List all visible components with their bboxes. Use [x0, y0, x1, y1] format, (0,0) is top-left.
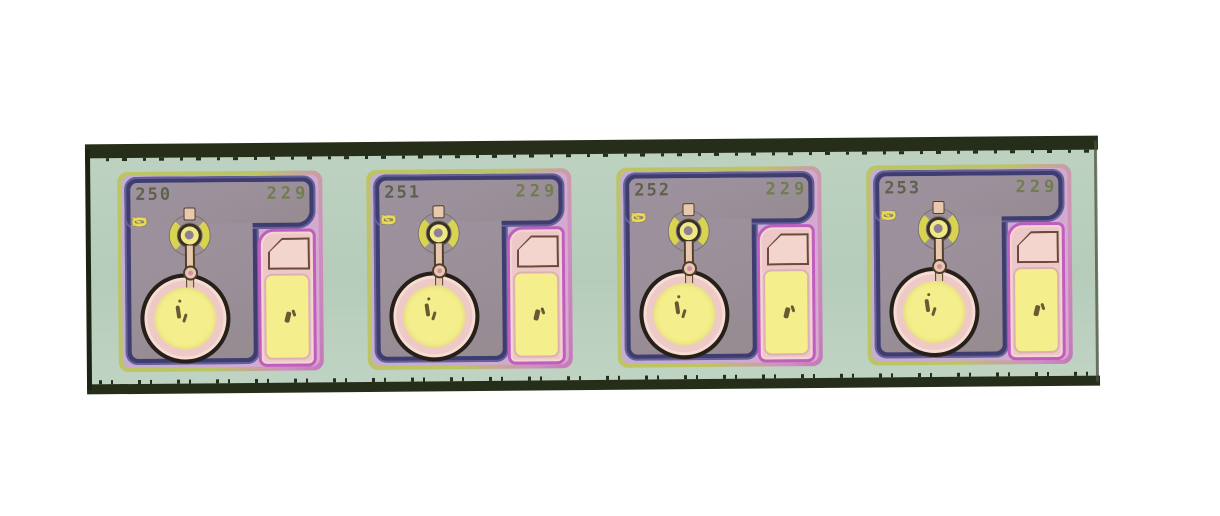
probe-mark: [674, 301, 680, 314]
trace-node-hole: [437, 268, 442, 273]
probe-mark: [431, 311, 437, 320]
die-code-number: 229: [766, 179, 809, 199]
probe-mark: [533, 309, 540, 321]
alignment-ring: [178, 223, 202, 247]
alignment-ring-hole: [434, 228, 443, 237]
die-code-number: 229: [267, 183, 310, 203]
probe-mark: [931, 307, 937, 316]
trace-node: [682, 261, 697, 276]
trace-node: [183, 265, 198, 280]
chip-die-252: 252 229 2 2 0: [616, 166, 823, 368]
probe-mark: [284, 311, 291, 323]
circular-bond-pad: [903, 281, 966, 344]
trace-node: [932, 259, 947, 274]
rect-bond-pad: [763, 269, 810, 355]
trapezoid-pad: [769, 235, 807, 263]
strip-bottom-edge: [87, 376, 1100, 395]
trapezoid-pad: [1019, 233, 1057, 261]
probe-mark: [178, 300, 181, 303]
alignment-ring: [927, 217, 951, 241]
die-serial-number: 250: [135, 185, 172, 205]
rect-bond-pad: [513, 271, 560, 357]
strip-right-edge: [1094, 141, 1099, 382]
alignment-ring-hole: [934, 224, 943, 233]
trapezoid-pad: [519, 237, 557, 265]
rect-pad-area: [757, 224, 816, 363]
circular-bond-pad: [403, 285, 466, 348]
die-code-number: 229: [1016, 177, 1059, 197]
probe-mark: [681, 309, 687, 318]
alignment-tab: [183, 207, 195, 220]
strip-left-edge: [85, 149, 92, 390]
die-serial-number: 251: [384, 182, 421, 202]
trace-node-hole: [687, 266, 692, 271]
probe-mark: [677, 295, 680, 298]
alignment-ring-hole: [684, 226, 693, 235]
alignment-tab: [432, 205, 444, 218]
trace-node-hole: [188, 270, 193, 275]
rect-bond-pad: [264, 273, 311, 359]
trace-node: [432, 263, 447, 278]
die-serial-number: 253: [884, 178, 921, 198]
chip-die-250: 250 229 2 2 0: [117, 170, 324, 372]
alignment-ring-hole: [185, 230, 194, 239]
probe-mark: [424, 303, 430, 316]
wafer-strip: 250 229 2 2 0: [87, 139, 1098, 393]
probe-mark: [540, 307, 545, 315]
probe-mark: [927, 293, 930, 296]
circular-bond-pad: [653, 283, 716, 346]
alignment-tab: [682, 203, 694, 216]
rect-pad-area: [258, 228, 317, 367]
probe-mark: [783, 307, 790, 319]
photo-canvas: { "canvas": { "background": "#ffffff" },…: [0, 0, 1220, 516]
probe-mark: [1033, 305, 1040, 317]
trapezoid-pad: [270, 239, 308, 267]
circular-bond-pad: [154, 287, 217, 350]
chip-die-251: 251 229 2 2 0: [366, 168, 573, 370]
chip-die-253: 253 229 2 2 0: [866, 164, 1073, 366]
strip-top-edge: [85, 136, 1098, 159]
die-code-number: 229: [516, 181, 559, 201]
alignment-tab: [932, 201, 944, 214]
die-serial-number: 252: [634, 180, 671, 200]
probe-mark: [175, 305, 181, 318]
rect-pad-area: [507, 226, 566, 365]
probe-mark: [291, 309, 296, 317]
rect-bond-pad: [1013, 267, 1060, 353]
probe-mark: [924, 299, 930, 312]
probe-mark: [790, 305, 795, 313]
rect-pad-area: [1007, 222, 1066, 361]
probe-mark: [182, 313, 188, 322]
alignment-ring: [677, 219, 701, 243]
trace-node-hole: [937, 264, 942, 269]
alignment-ring: [427, 221, 451, 245]
probe-mark: [1040, 303, 1045, 311]
probe-mark: [427, 297, 430, 300]
